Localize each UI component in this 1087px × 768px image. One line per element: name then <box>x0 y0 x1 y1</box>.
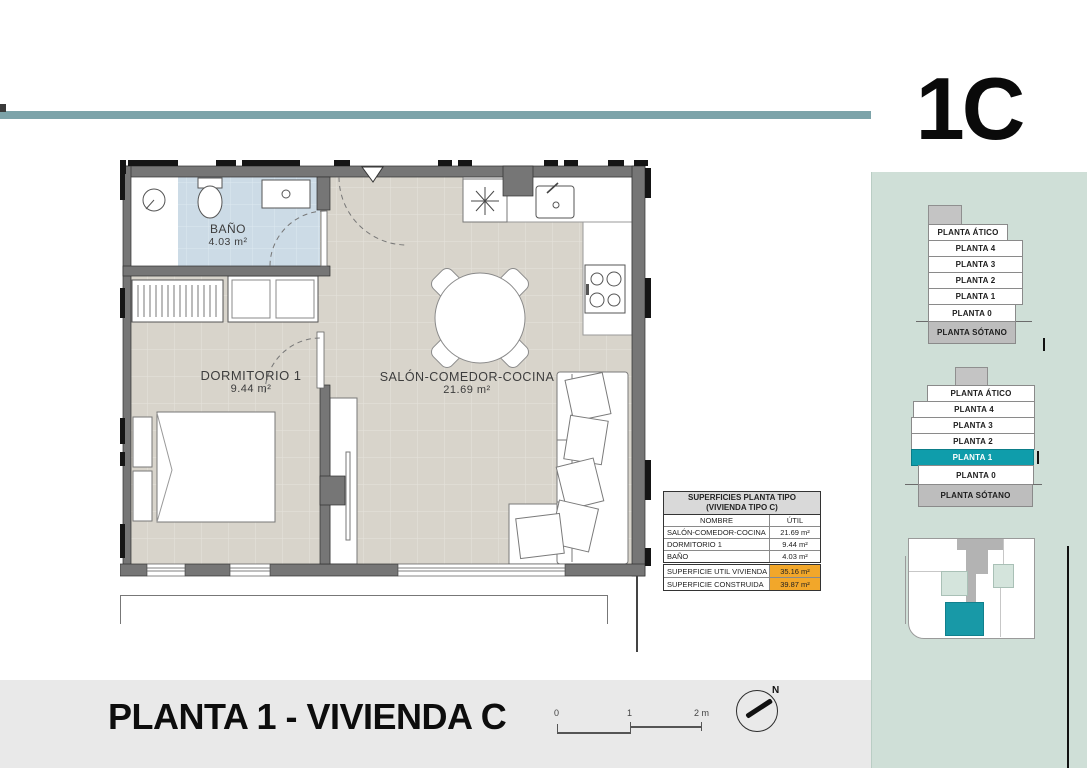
floor-button-planta-1[interactable]: PLANTA 1 <box>928 288 1023 305</box>
band-edge-mark <box>0 104 6 112</box>
row-name: BAÑO <box>664 551 770 562</box>
surfaces-table-title-line1: SUPERFICIES PLANTA TIPO <box>664 493 820 503</box>
surfaces-table-title-line2: (VIVIENDA TIPO C) <box>664 503 820 513</box>
scale-bar <box>701 722 702 731</box>
north-label: N <box>772 685 779 696</box>
row-value: 21.69 m² <box>770 527 820 538</box>
floor-button-planta-3[interactable]: PLANTA 3 <box>928 256 1023 273</box>
scale-bar <box>630 726 702 728</box>
row-value: 9.44 m² <box>770 539 820 550</box>
wardrobe <box>132 280 223 322</box>
key-plan-unit-c-selected[interactable] <box>945 602 984 636</box>
key-plan-unit-other[interactable] <box>941 571 968 596</box>
shower-fixture <box>143 189 165 211</box>
row-value: 4.03 m² <box>770 551 820 562</box>
floor-button-planta-4[interactable]: PLANTA 4 <box>928 240 1023 257</box>
row-name: SALÓN-COMEDOR-COCINA <box>664 527 770 538</box>
dimension-line <box>120 595 608 596</box>
room-area: 4.03 m² <box>178 236 278 248</box>
floor-button-planta-3[interactable]: PLANTA 3 <box>911 417 1035 434</box>
floor-button-planta-2[interactable]: PLANTA 2 <box>911 433 1035 450</box>
plan-edge-line <box>636 576 638 652</box>
total-value: 35.16 m² <box>770 565 820 577</box>
floor-button-sotano[interactable]: PLANTA SÓTANO <box>928 321 1016 344</box>
unit-divider-line <box>909 571 941 572</box>
floor-button-atico[interactable]: PLANTA ÁTICO <box>927 385 1035 402</box>
kitchen-sink <box>536 183 574 218</box>
surfaces-totals-table: SUPERFICIE UTIL VIVIENDA 35.16 m² SUPERF… <box>663 564 821 591</box>
table-row: SUPERFICIE CONSTRUIDA 39.87 m² <box>664 578 820 590</box>
dimension-tick-left <box>120 596 121 624</box>
room-name: SALÓN-COMEDOR-COCINA <box>356 370 578 384</box>
building-roof-box <box>955 367 988 386</box>
dimension-tick-right <box>607 596 608 624</box>
room-name: DORMITORIO 1 <box>156 368 346 383</box>
col-header-util: ÚTIL <box>770 515 820 526</box>
surfaces-table-title: SUPERFICIES PLANTA TIPO (VIVIENDA TIPO C… <box>664 492 820 515</box>
surfaces-table: SUPERFICIES PLANTA TIPO (VIVIENDA TIPO C… <box>663 491 821 563</box>
room-name: BAÑO <box>178 222 278 236</box>
drawing-mark <box>1067 546 1069 768</box>
table-row: SUPERFICIE UTIL VIVIENDA 35.16 m² <box>664 565 820 578</box>
table-row: SALÓN-COMEDOR-COCINA 21.69 m² <box>664 527 820 539</box>
drawing-mark <box>1043 338 1045 351</box>
floor-button-planta-0[interactable]: PLANTA 0 <box>928 304 1016 322</box>
floor-button-planta-2[interactable]: PLANTA 2 <box>928 272 1023 289</box>
page-title: PLANTA 1 - VIVIENDA C <box>108 696 506 738</box>
fridge-icon <box>463 179 507 222</box>
stove <box>585 265 625 313</box>
closet <box>228 276 318 322</box>
floor-button-planta-4[interactable]: PLANTA 4 <box>913 401 1035 418</box>
scale-tick-0: 0 <box>554 708 559 718</box>
core-corridor <box>957 539 1004 550</box>
key-plan-unit-other[interactable] <box>993 564 1014 588</box>
site-edge-line <box>905 556 906 624</box>
room-area: 9.44 m² <box>156 383 346 395</box>
floor-button-atico[interactable]: PLANTA ÁTICO <box>928 224 1008 241</box>
scale-tick-2m: 2 m <box>694 708 709 718</box>
room-area: 21.69 m² <box>356 384 578 396</box>
total-name: SUPERFICIE UTIL VIVIENDA <box>664 565 770 577</box>
room-label-bano: BAÑO 4.03 m² <box>178 222 278 248</box>
unit-divider-line <box>1000 588 1001 637</box>
unit-label: 1C <box>878 50 1060 168</box>
toilet <box>198 178 222 218</box>
bathroom-sink <box>262 180 310 208</box>
surfaces-table-header-row: NOMBRE ÚTIL <box>664 515 820 527</box>
unit-divider-line <box>1003 539 1004 564</box>
key-plan <box>908 538 1035 639</box>
floor-button-sotano[interactable]: PLANTA SÓTANO <box>918 484 1033 507</box>
room-label-salon: SALÓN-COMEDOR-COCINA 21.69 m² <box>356 370 578 396</box>
dining-table <box>429 266 532 371</box>
table-row: BAÑO 4.03 m² <box>664 551 820 562</box>
total-value: 39.87 m² <box>770 578 820 590</box>
drawing-mark <box>1037 451 1039 464</box>
header-divider-band <box>0 111 871 119</box>
scale-tick-1: 1 <box>627 708 632 718</box>
floor-button-planta-0[interactable]: PLANTA 0 <box>918 465 1034 485</box>
scale-bar <box>557 732 631 734</box>
col-header-nombre: NOMBRE <box>664 515 770 526</box>
total-name: SUPERFICIE CONSTRUIDA <box>664 578 770 590</box>
building-roof-box <box>928 205 962 225</box>
floor-button-planta-1-selected[interactable]: PLANTA 1 <box>911 449 1034 466</box>
row-name: DORMITORIO 1 <box>664 539 770 550</box>
room-label-dormitorio: DORMITORIO 1 9.44 m² <box>156 368 346 395</box>
table-row: DORMITORIO 1 9.44 m² <box>664 539 820 551</box>
